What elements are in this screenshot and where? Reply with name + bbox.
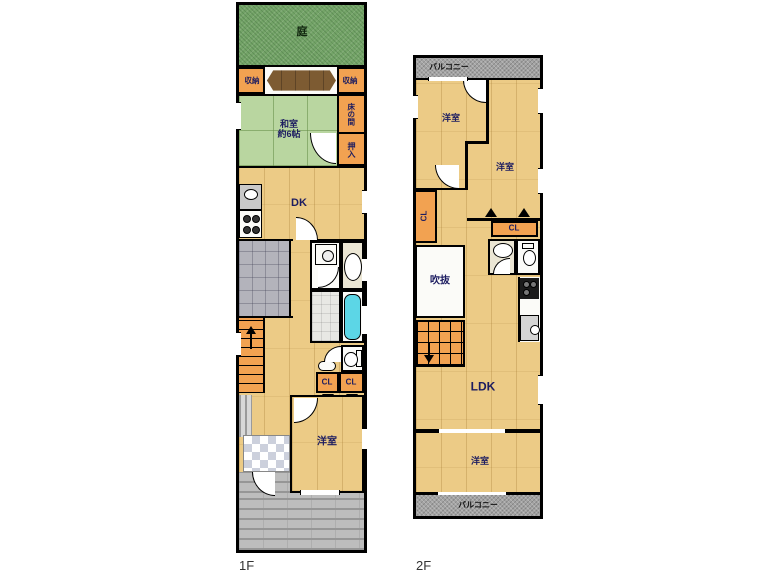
sink-2f <box>520 315 539 341</box>
storage-left-label: 収納 <box>245 77 260 85</box>
genkan-entrance <box>243 435 290 472</box>
window <box>538 168 543 194</box>
storage-right-label: 収納 <box>343 77 358 85</box>
balcony-top-label: バルコニー <box>429 64 469 73</box>
window <box>437 492 507 495</box>
washitsu-label: 和室 約6帖 <box>277 120 300 140</box>
floor2-plan: バルコニー 洋室 洋室 CL CL 吹抜 <box>413 55 543 519</box>
bedroom-1f-label: 洋室 <box>317 437 337 448</box>
closet-right-1f-label: CL <box>346 379 357 388</box>
kitchen-stove <box>239 210 262 238</box>
window <box>362 428 367 450</box>
oshiire-label: 押入 <box>347 142 355 158</box>
window <box>300 490 340 495</box>
bedroom-2f-nw-label: 洋室 <box>442 114 460 124</box>
stairs-down-arrow-icon <box>424 355 434 363</box>
closet-left-1f-label: CL <box>322 379 333 388</box>
stove-2f <box>520 278 539 299</box>
kitchen-sink <box>239 184 262 210</box>
floorplan-canvas: 庭 収納 収納 和室 約6帖 床の間 押入 DK <box>0 0 780 585</box>
window <box>362 190 367 214</box>
dk-label: DK <box>291 197 307 209</box>
floor1-plan: 庭 収納 収納 和室 約6帖 床の間 押入 DK <box>236 2 367 553</box>
wall <box>465 141 468 190</box>
washitsu-label-line2: 約6帖 <box>277 129 300 139</box>
closet-mid-2f-label: CL <box>509 225 520 234</box>
washbasin-2f <box>493 243 513 258</box>
hand-basin <box>318 361 336 371</box>
window <box>413 95 418 119</box>
void-label: 吹抜 <box>430 276 450 287</box>
toilet <box>344 352 358 367</box>
engawa-deck <box>267 69 336 92</box>
window <box>538 88 543 114</box>
floor1-label: 1F <box>239 558 254 573</box>
toilet-2f <box>523 250 536 266</box>
garden-label: 庭 <box>297 26 308 38</box>
closet-side-2f-label: CL <box>420 211 429 222</box>
window <box>362 305 367 335</box>
staircase-2f <box>415 320 465 367</box>
balcony-bottom-label: バルコニー <box>458 502 498 511</box>
floor2-label: 2F <box>416 558 431 573</box>
driveway <box>239 493 364 550</box>
window <box>538 375 543 405</box>
stairs-up-arrow-icon <box>246 326 256 334</box>
window <box>362 258 367 282</box>
closet-door-mark <box>485 208 497 217</box>
bedroom-2f-s-label: 洋室 <box>471 457 489 467</box>
tile-walkway <box>239 241 291 317</box>
window <box>428 77 468 81</box>
ldk-label: LDK <box>471 380 496 393</box>
toilet-tank-2f <box>522 243 534 249</box>
wall <box>486 80 489 143</box>
washitsu-label-line1: 和室 <box>280 119 298 129</box>
wall <box>465 141 489 144</box>
sliding-door-opening <box>438 429 506 433</box>
washbasin <box>344 253 362 281</box>
stairs-up-arrow-icon <box>250 333 252 349</box>
bathtub <box>344 294 361 340</box>
bedroom-2f-ne-label: 洋室 <box>496 163 514 173</box>
tokonoma-label: 床の間 <box>347 103 355 126</box>
porch-strip <box>239 395 252 437</box>
closet-door-mark <box>518 208 530 217</box>
washing-machine <box>315 244 337 265</box>
window <box>236 332 241 356</box>
window <box>236 102 241 130</box>
wall <box>239 166 364 168</box>
washroom <box>310 290 341 343</box>
